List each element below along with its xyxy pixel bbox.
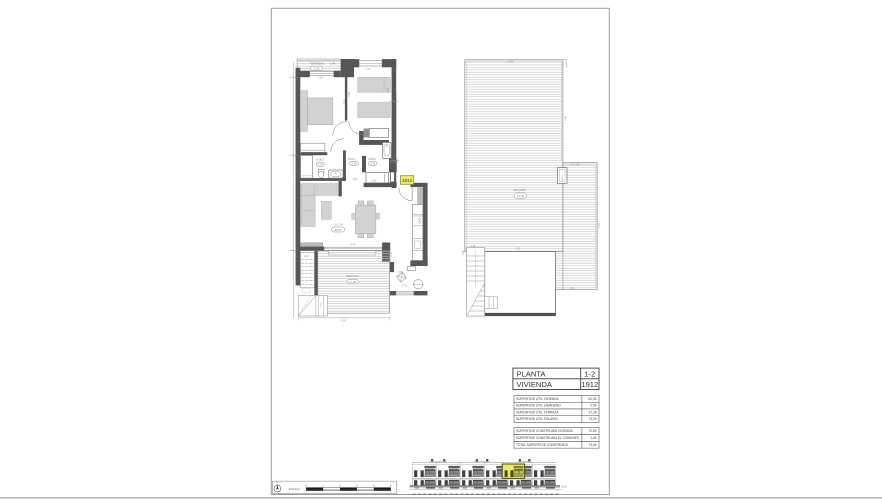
svg-text:1.00: 1.00 xyxy=(304,256,309,258)
svg-text:0.90: 0.90 xyxy=(570,287,575,290)
svg-text:SUPERFICIE CONSTRUIDA EL.COMUN: SUPERFICIE CONSTRUIDA EL.COMUNES xyxy=(516,436,579,440)
svg-text:1,85: 1,85 xyxy=(590,436,596,440)
svg-text:1912: 1912 xyxy=(402,178,413,183)
svg-text:74,00: 74,00 xyxy=(589,417,597,421)
svg-text:3.00: 3.00 xyxy=(387,88,390,93)
svg-text:3.30: 3.30 xyxy=(318,163,324,167)
svg-text:1.95: 1.95 xyxy=(353,179,358,181)
svg-text:1.50: 1.50 xyxy=(390,252,393,257)
svg-text:17.28: 17.28 xyxy=(349,280,356,284)
svg-text:72,80: 72,80 xyxy=(589,429,597,433)
svg-text:LAVA: LAVA xyxy=(398,270,404,273)
svg-text:17,28: 17,28 xyxy=(589,410,597,414)
svg-text:SUPERFICIE ÚTIL TERRAZA: SUPERFICIE ÚTIL TERRAZA xyxy=(516,409,559,414)
svg-text:TERRAZA: TERRAZA xyxy=(346,274,360,278)
svg-text:PLANTA: PLANTA xyxy=(517,369,547,378)
svg-text:ASEO: ASEO xyxy=(316,158,323,162)
svg-text:1-2: 1-2 xyxy=(584,369,595,378)
svg-text:2.48: 2.48 xyxy=(370,162,376,166)
svg-text:ESCALA :: ESCALA : xyxy=(289,487,302,491)
svg-text:PERG.: PERG. xyxy=(562,174,564,181)
svg-text:4.26: 4.26 xyxy=(348,91,351,96)
svg-text:74,65: 74,65 xyxy=(589,443,597,447)
svg-text:1.60: 1.60 xyxy=(314,67,320,71)
svg-text:2.48: 2.48 xyxy=(351,162,357,166)
svg-text:3.10: 3.10 xyxy=(343,99,346,104)
svg-text:4.95: 4.95 xyxy=(565,115,568,120)
svg-text:SUPERFICIE ÚTIL VIVIENDA: SUPERFICIE ÚTIL VIVIENDA xyxy=(516,396,559,401)
svg-text:62,40: 62,40 xyxy=(589,397,597,401)
svg-text:7.08: 7.08 xyxy=(462,250,465,255)
svg-text:1.48: 1.48 xyxy=(471,245,476,248)
svg-text:4.05: 4.05 xyxy=(341,319,346,322)
svg-text:2.46: 2.46 xyxy=(330,61,336,65)
svg-text:2,90: 2,90 xyxy=(590,404,596,408)
svg-text:2.70: 2.70 xyxy=(402,285,407,288)
svg-text:4.40: 4.40 xyxy=(351,244,356,247)
svg-text:1.40: 1.40 xyxy=(372,179,377,182)
svg-text:SUPERFICIE CONSTRUIDA VIVIENDA: SUPERFICIE CONSTRUIDA VIVIENDA xyxy=(516,429,574,433)
svg-text:74.00: 74.00 xyxy=(517,194,525,198)
svg-text:7.50: 7.50 xyxy=(598,223,601,228)
svg-text:TOTAL SUPERFICIE CONSTRUIDA: TOTAL SUPERFICIE CONSTRUIDA xyxy=(516,443,569,447)
svg-text:1.2 1.50: 1.2 1.50 xyxy=(571,164,580,167)
svg-text:+0.15: +0.15 xyxy=(561,486,568,489)
svg-text:2.24: 2.24 xyxy=(318,77,323,80)
svg-text:26.95: 26.95 xyxy=(334,228,342,232)
svg-text:S-C-B: S-C-B xyxy=(335,222,343,226)
svg-text:5.40: 5.40 xyxy=(509,61,514,64)
svg-text:SUPERFICIE ÚTIL SOLARIO: SUPERFICIE ÚTIL SOLARIO xyxy=(516,416,558,421)
svg-text:2.41: 2.41 xyxy=(366,68,371,71)
svg-text:1912: 1912 xyxy=(581,380,598,389)
svg-text:4.20: 4.20 xyxy=(516,248,521,251)
svg-text:SOLARIO: SOLARIO xyxy=(513,188,527,192)
svg-text:TERRAZA b: TERRAZA b xyxy=(310,61,325,65)
svg-text:VIVIENDA: VIVIENDA xyxy=(517,380,553,389)
svg-text:PASO: PASO xyxy=(348,157,355,161)
svg-text:SUPERFICIE ÚTIL LAVADERO: SUPERFICIE ÚTIL LAVADERO xyxy=(516,403,561,408)
